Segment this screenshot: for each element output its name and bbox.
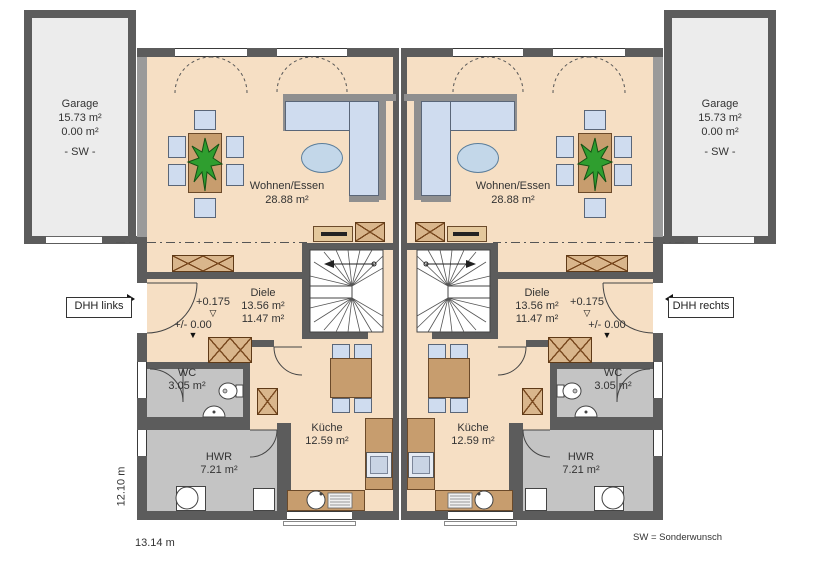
stairs-icon bbox=[310, 250, 383, 332]
room-label-kitchen: Küche bbox=[433, 422, 513, 435]
unit-label: DHH links bbox=[66, 297, 132, 318]
level-marker-upper-icon: ▽ bbox=[206, 309, 220, 318]
plant-icon bbox=[578, 138, 612, 191]
unit-left: Garage 15.73 m² 0.00 m² - SW - bbox=[10, 0, 400, 570]
room-area-utility: 7.21 m² bbox=[189, 464, 249, 477]
level-marker-ground-icon: ▼ bbox=[600, 331, 614, 340]
room-area-hall-b: 11.47 m² bbox=[497, 313, 577, 326]
room-label-living: Wohnen/Essen bbox=[453, 180, 573, 193]
room-area-living: 28.88 m² bbox=[227, 194, 347, 207]
depth-dimension: 12.10 m bbox=[116, 457, 129, 517]
room-area-utility: 7.21 m² bbox=[551, 464, 611, 477]
room-label-kitchen: Küche bbox=[287, 422, 367, 435]
room-area-living: 28.88 m² bbox=[453, 194, 573, 207]
drainer-icon bbox=[328, 493, 352, 508]
room-area-wc: 3.05 m² bbox=[583, 380, 643, 393]
room-label-wc: WC bbox=[583, 367, 643, 380]
drainer-icon bbox=[448, 493, 472, 508]
washer-drum-icon bbox=[602, 487, 624, 509]
kitchen-sink-icon bbox=[475, 491, 493, 509]
room-area-kitchen: 12.59 m² bbox=[287, 435, 367, 448]
room-area-kitchen: 12.59 m² bbox=[433, 435, 513, 448]
room-label-utility: HWR bbox=[189, 451, 249, 464]
level-marker-ground-icon: ▼ bbox=[186, 331, 200, 340]
toilet-icon bbox=[219, 383, 243, 399]
fixtures-layer bbox=[10, 0, 400, 570]
room-area-hall-b: 11.47 m² bbox=[223, 313, 303, 326]
kitchen-sink-icon bbox=[307, 491, 325, 509]
unit-right: Garage 15.73 m² 0.00 m² - SW - bbox=[400, 0, 790, 570]
fixtures-layer bbox=[400, 0, 790, 570]
stairs-icon bbox=[417, 250, 490, 332]
room-area-wc: 3.05 m² bbox=[157, 380, 217, 393]
room-label-living: Wohnen/Essen bbox=[227, 180, 347, 193]
plant-icon bbox=[188, 138, 222, 191]
party-wall-gap bbox=[399, 48, 401, 520]
washer-drum-icon bbox=[176, 487, 198, 509]
legend-sw-note: SW = Sonderwunsch bbox=[633, 532, 753, 543]
wc-sink-icon bbox=[203, 406, 225, 417]
width-dimension: 13.14 m bbox=[135, 537, 205, 550]
unit-label: DHH rechts bbox=[668, 297, 734, 318]
toilet-icon bbox=[557, 383, 581, 399]
floor-plan: Garage 15.73 m² 0.00 m² - SW - bbox=[0, 0, 822, 570]
room-label-wc: WC bbox=[157, 367, 217, 380]
level-marker-upper-icon: ▽ bbox=[580, 309, 594, 318]
room-label-utility: HWR bbox=[551, 451, 611, 464]
wc-sink-icon bbox=[575, 406, 597, 417]
door-swing-icon bbox=[453, 57, 625, 93]
door-swing-icon bbox=[175, 57, 347, 93]
